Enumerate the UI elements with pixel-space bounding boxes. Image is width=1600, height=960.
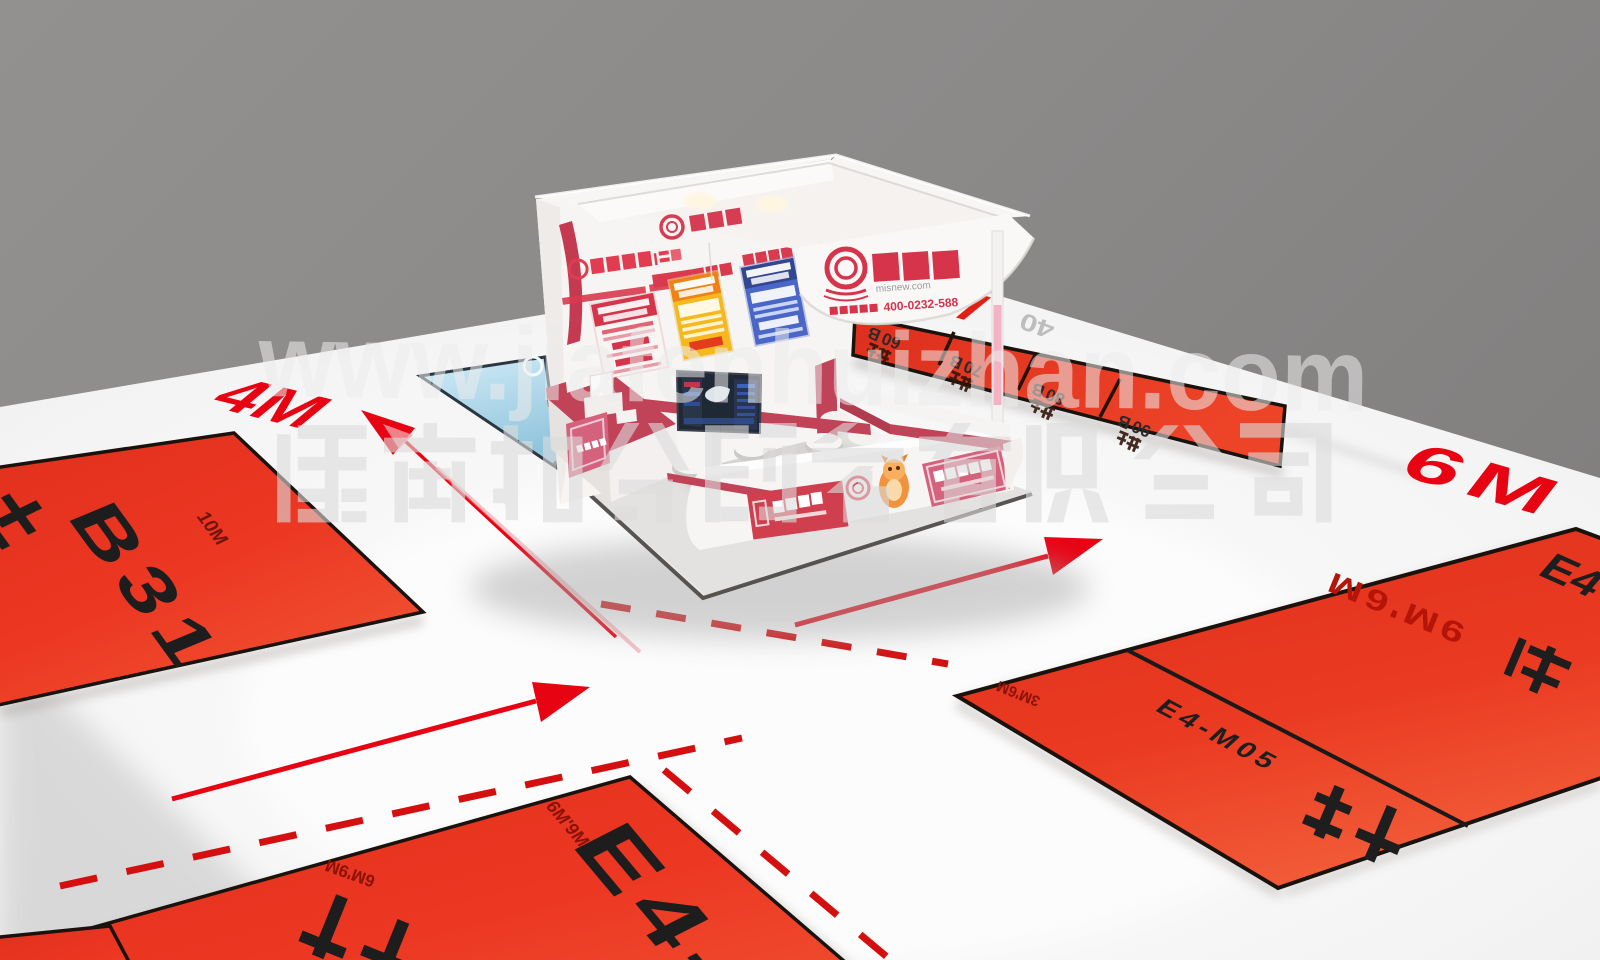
svg-text:www.jiafenhuizhan.com: www.jiafenhuizhan.com <box>257 303 1369 434</box>
